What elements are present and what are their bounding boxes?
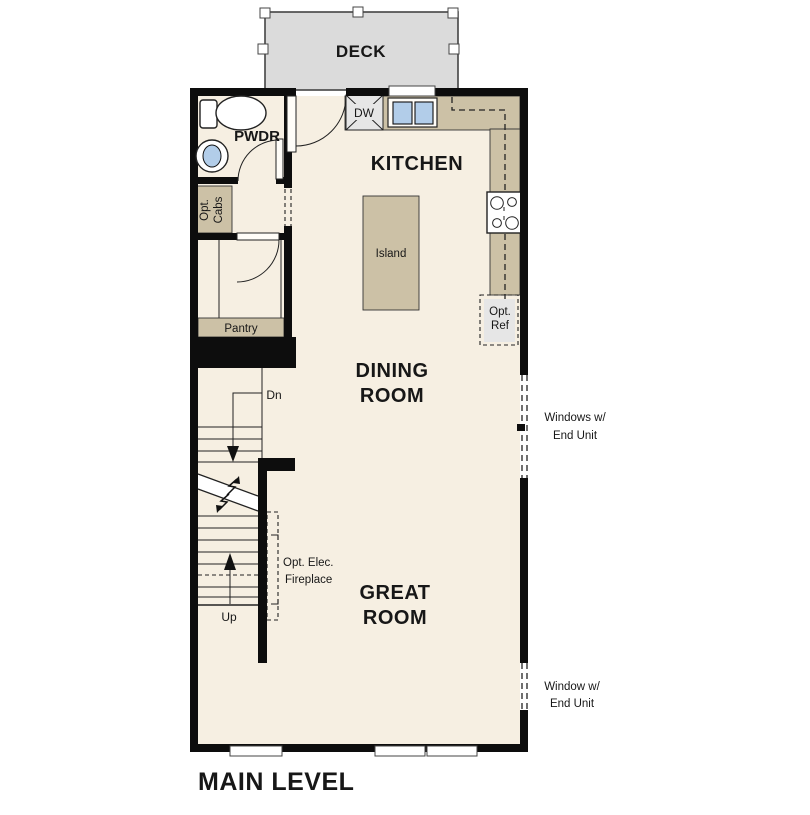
room-label-dining-1: DINING	[356, 360, 429, 382]
deck-door-leaf	[287, 96, 296, 152]
sink-basin-right	[415, 102, 433, 124]
room-label-dining-2: ROOM	[360, 385, 424, 407]
wall-right-lower	[520, 710, 528, 752]
wall-right-middle	[520, 478, 528, 663]
window-right-upper-mullion	[517, 424, 525, 431]
window-bottom-right	[427, 746, 477, 756]
dishwasher: DW	[346, 95, 383, 130]
wall-pantry-top-left	[190, 233, 237, 240]
annotation-windows-upper-2: End Unit	[553, 430, 598, 442]
deck-label: DECK	[336, 42, 386, 61]
sink-basin-left	[393, 102, 412, 124]
opt-ref: Opt. Ref	[480, 295, 518, 345]
stair-dn-label: Dn	[266, 388, 281, 402]
stair-up-label: Up	[221, 610, 237, 624]
wall-pwdr-bottom	[190, 177, 238, 184]
stove-icon	[487, 192, 521, 233]
deck-post	[260, 8, 270, 18]
pwdr-door-leaf	[276, 139, 283, 179]
deck-post	[449, 44, 459, 54]
annotation-windows-upper: Windows w/ End Unit	[544, 412, 606, 442]
deck: DECK	[258, 7, 459, 90]
kitchen-island: Island	[363, 196, 419, 310]
floorplan-svg: DECK DW	[0, 0, 810, 810]
window-bottom-mid	[375, 746, 425, 756]
annotation-windows-upper-1: Windows w/	[544, 412, 606, 424]
pwdr-sink-icon	[196, 140, 228, 172]
floorplan-page: DECK DW	[0, 0, 810, 810]
annotation-window-lower: Window w/ End Unit	[544, 681, 600, 710]
pantry-door-leaf	[237, 233, 279, 240]
room-label-pwdr: PWDR	[234, 128, 280, 145]
room-label-kitchen: KITCHEN	[371, 153, 463, 175]
kitchen-sink-icon	[388, 98, 437, 127]
wall-stair-head	[190, 337, 296, 368]
opt-cabs-label-1: Opt.	[199, 199, 211, 221]
opt-ref-label-1: Opt.	[489, 306, 511, 318]
deck-post	[353, 7, 363, 17]
room-label-great-1: GREAT	[359, 582, 430, 604]
opt-cabs-label-2: Cabs	[213, 196, 225, 223]
pantry-label: Pantry	[224, 323, 257, 335]
room-label-great-2: ROOM	[363, 607, 427, 629]
page-title: MAIN LEVEL	[198, 768, 354, 796]
annotation-window-lower-2: End Unit	[550, 698, 595, 710]
dishwasher-label: DW	[354, 106, 375, 120]
wall-top-left	[190, 88, 296, 96]
window-above-sink	[389, 86, 435, 96]
fireplace-label-1: Opt. Elec.	[283, 557, 334, 569]
interior-floor	[198, 96, 520, 744]
wall-left	[190, 88, 198, 752]
fireplace-label-2: Fireplace	[285, 574, 332, 586]
wall-stair-side	[258, 458, 267, 663]
deck-post	[258, 44, 268, 54]
opt-ref-label-2: Ref	[491, 320, 510, 332]
toilet-icon	[200, 96, 266, 130]
window-right-lower-dashes	[522, 663, 527, 710]
wall-hall-column-lower	[284, 226, 292, 338]
island-label: Island	[376, 248, 407, 260]
deck-post	[448, 8, 458, 18]
annotation-window-lower-1: Window w/	[544, 681, 600, 693]
wall-right-upper	[520, 88, 528, 375]
wall-pantry-top-right	[279, 233, 292, 240]
window-bottom-left	[230, 746, 282, 756]
wall-top-right	[346, 88, 528, 96]
